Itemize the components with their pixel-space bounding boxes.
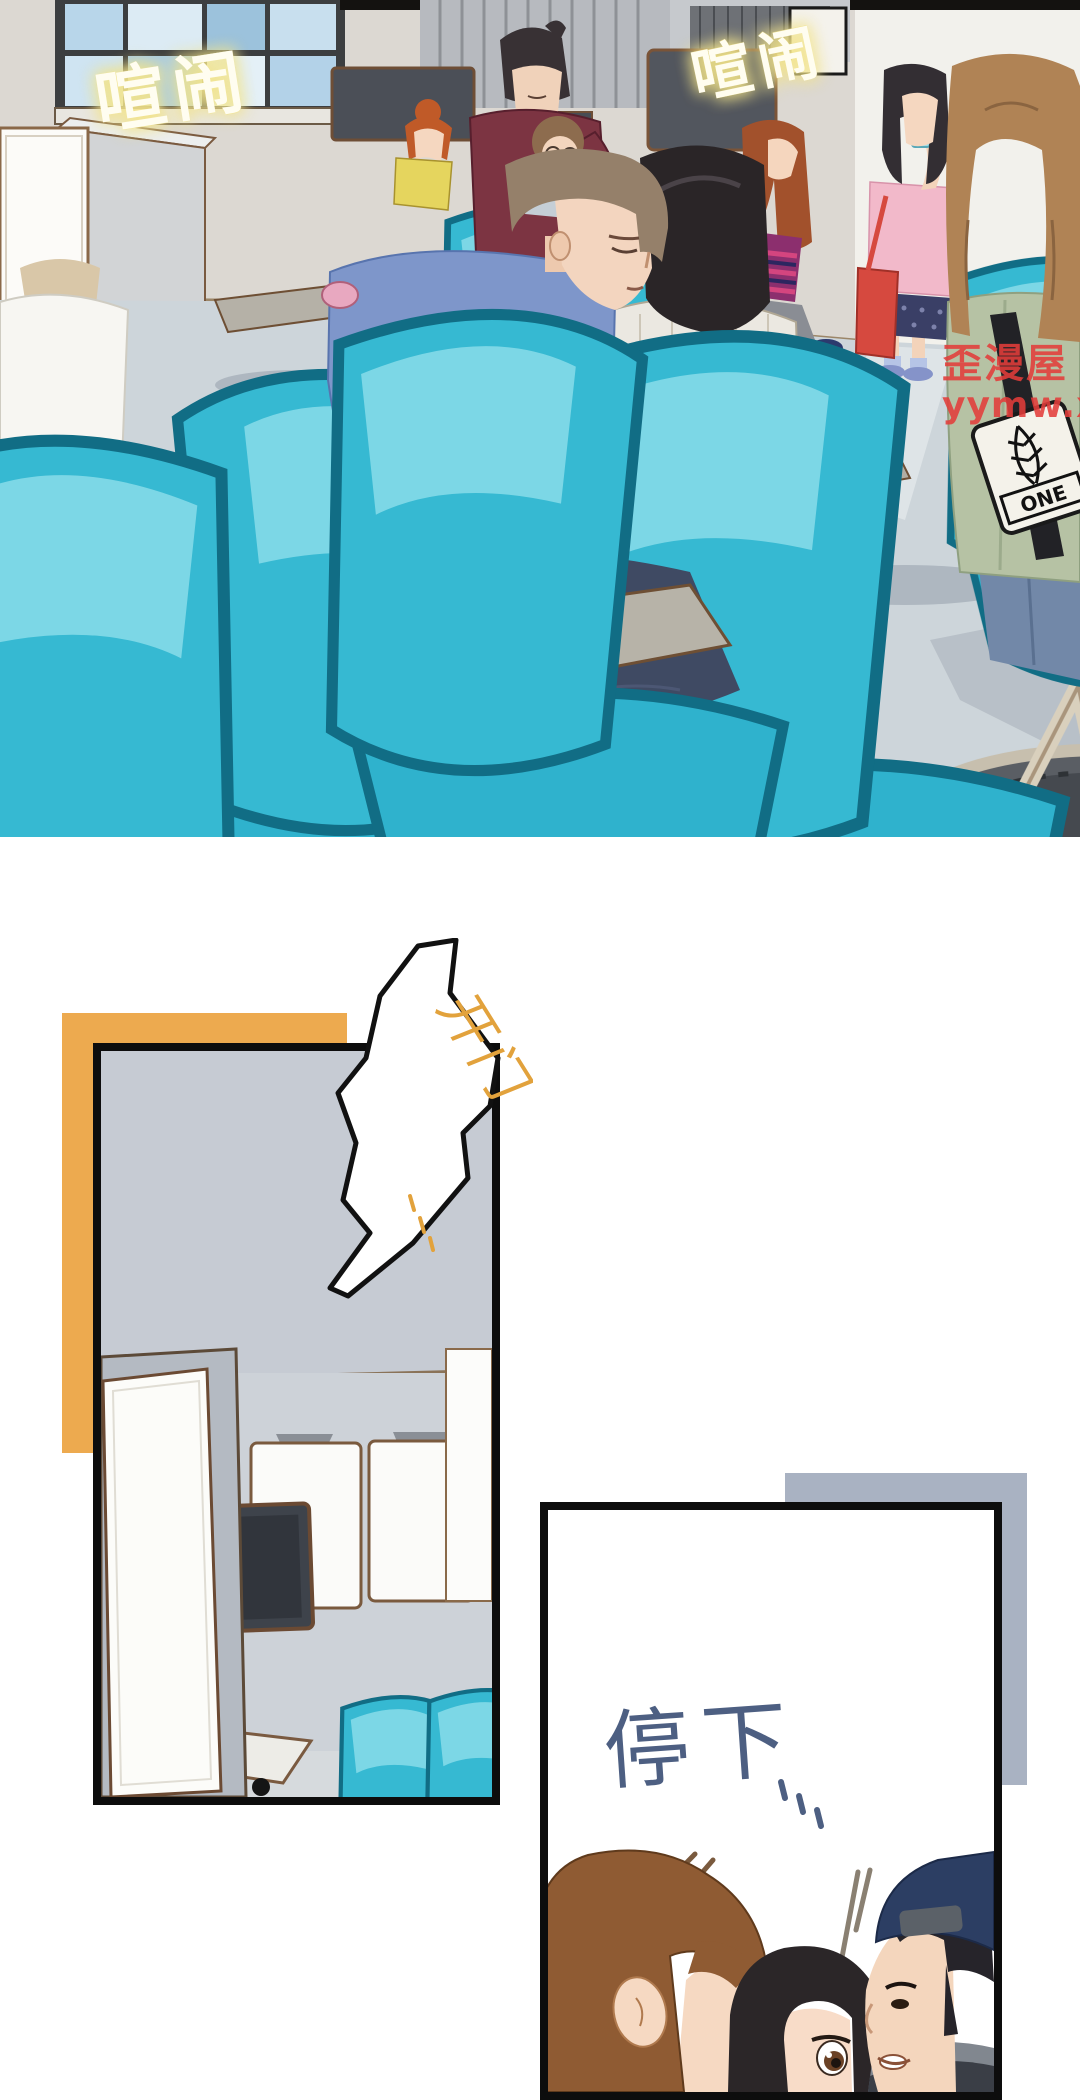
panel-stop: 停下 <box>540 1502 1002 2100</box>
watermark: 歪漫屋 yymw.xyz <box>942 342 1080 426</box>
door <box>101 1349 246 1797</box>
comic-page: ONE 喧闹 喧闹 喧闹 喧闹 歪漫屋 yymw.xyz <box>0 0 1080 2100</box>
speech-bubble: 开门 <box>318 938 533 1303</box>
watermark-line1: 歪漫屋 <box>942 342 1080 386</box>
pink-bag <box>322 282 358 308</box>
dialogue-text: 停下 <box>600 1690 802 1803</box>
tv-screen <box>332 68 474 140</box>
panel-classroom: ONE 喧闹 喧闹 喧闹 喧闹 <box>0 0 1080 837</box>
watermark-line2: yymw.xyz <box>942 386 1080 426</box>
